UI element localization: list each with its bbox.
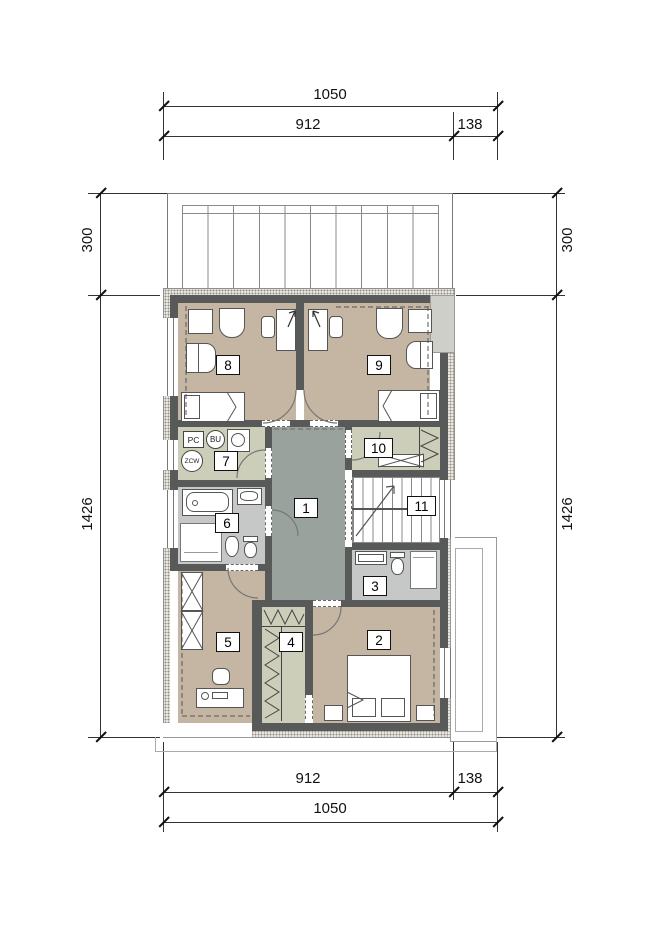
dim-top-total: 1050 [300, 87, 360, 103]
window-room6 [163, 490, 178, 548]
dim-right-balcony: 300 [560, 215, 576, 265]
wardrobe-symbol [181, 611, 203, 650]
nightstand-symbol [416, 705, 435, 721]
dim-line-top-split [163, 136, 498, 137]
nightstand-symbol [324, 705, 343, 721]
wardrobe-symbol [188, 309, 213, 334]
pc-unit: PC [183, 431, 204, 448]
desk-chair-symbol [261, 316, 275, 338]
door-opening-room6 [265, 506, 272, 536]
wall-4-2 [305, 607, 313, 695]
dim-line-bottom-total [163, 822, 498, 823]
dim-top-side: 138 [450, 117, 490, 133]
floor-plan: 1050 912 138 912 138 1050 300 1426 300 1… [0, 0, 660, 934]
armchair-symbol [219, 308, 245, 338]
roof-edge-band [430, 295, 455, 353]
shower-drain-line [413, 557, 434, 558]
desk-chair-symbol [329, 316, 343, 338]
balcony-deck-band [182, 213, 439, 214]
ext-line [456, 295, 565, 296]
ext-line [163, 742, 164, 832]
room-label-1: 1 [294, 498, 318, 518]
room-label-3: 3 [363, 576, 387, 596]
dim-bottom-main: 912 [278, 771, 338, 787]
window-room8 [163, 318, 178, 396]
dim-line-left [100, 193, 101, 737]
bidet-symbol [225, 536, 239, 557]
wall-above-2-4 [252, 600, 440, 607]
buffer-tank: BU [206, 430, 225, 449]
desk-chair-symbol [212, 668, 230, 685]
window-room7 [163, 440, 178, 470]
door-opening-room8 [262, 420, 290, 427]
ext-line [163, 92, 164, 160]
roof-slope-gap-left [170, 571, 178, 723]
lower-roof-outline-right-inner [455, 548, 483, 732]
room-label-5: 5 [216, 632, 240, 652]
pillow-symbol [352, 698, 376, 717]
wall-stairs-3 [352, 543, 440, 550]
dim-left-body: 1426 [80, 486, 96, 542]
room-label-6: 6 [215, 513, 239, 533]
door-opening-room5 [226, 564, 258, 571]
door-opening-room2 [313, 600, 341, 607]
lower-roof-outline-bottom [155, 737, 497, 752]
room-label-4: 4 [279, 632, 303, 652]
balcony-deck [182, 205, 439, 289]
dim-top-main: 912 [278, 117, 338, 133]
door-opening-room7 [265, 448, 272, 478]
washer-drum [231, 433, 245, 447]
hot-water-tank: ZCW [181, 450, 203, 472]
room-label-9: 9 [367, 355, 391, 375]
armchair-symbol [376, 308, 403, 339]
room-label-7: 7 [214, 451, 238, 471]
wall-5-4 [252, 600, 262, 723]
door-opening-room9 [310, 420, 338, 427]
wall-hall-right-bottom [345, 547, 352, 600]
room-label-11: 11 [407, 496, 436, 516]
armchair-divider-line [420, 342, 421, 368]
toilet-bowl [244, 542, 257, 558]
bathtub-drain [192, 500, 198, 506]
desk-keyboard [212, 692, 228, 699]
ext-line [453, 193, 565, 194]
room-label-2: 2 [367, 630, 391, 650]
dim-bottom-side: 138 [450, 771, 490, 787]
wall-10-stairs [352, 470, 440, 477]
window-room2 [440, 648, 455, 698]
dim-line-right [556, 193, 557, 737]
wardrobe-symbol [181, 572, 203, 611]
room-label-8: 8 [216, 355, 240, 375]
desk-symbol [308, 309, 328, 351]
armchair-divider-line [198, 344, 199, 372]
sink-basin [240, 491, 258, 501]
desk-lamp-dot [201, 692, 209, 700]
window-stairs [440, 480, 455, 538]
door-opening-room10 [345, 430, 352, 458]
room-label-10: 10 [364, 438, 393, 458]
wall-7-6 [178, 480, 265, 487]
pillow-symbol [381, 698, 405, 717]
dim-right-body: 1426 [560, 486, 576, 542]
pillow-symbol [184, 395, 200, 419]
door-opening-room4 [305, 695, 313, 719]
dim-left-balcony: 300 [80, 215, 96, 265]
ext-line [497, 92, 498, 160]
room-4-floor [262, 607, 305, 723]
armchair-symbol [186, 343, 216, 373]
hanger-rail-boundary [262, 626, 305, 627]
sink-basin [358, 554, 384, 562]
pillow-symbol [420, 393, 437, 419]
wardrobe-symbol [408, 309, 432, 333]
dim-line-bottom-split [163, 792, 498, 793]
toilet-bowl [391, 558, 404, 575]
dim-line-top-total [163, 106, 498, 107]
stairs-access-opening [345, 480, 352, 540]
shower-drain-line [184, 552, 218, 553]
wall-divider-8-9 [296, 303, 304, 390]
hanger-rail-boundary [419, 427, 420, 468]
roof-slope-gap-bottom [163, 723, 252, 738]
ext-line [497, 742, 498, 832]
desk-symbol [276, 309, 296, 351]
dim-bottom-total: 1050 [300, 801, 360, 817]
